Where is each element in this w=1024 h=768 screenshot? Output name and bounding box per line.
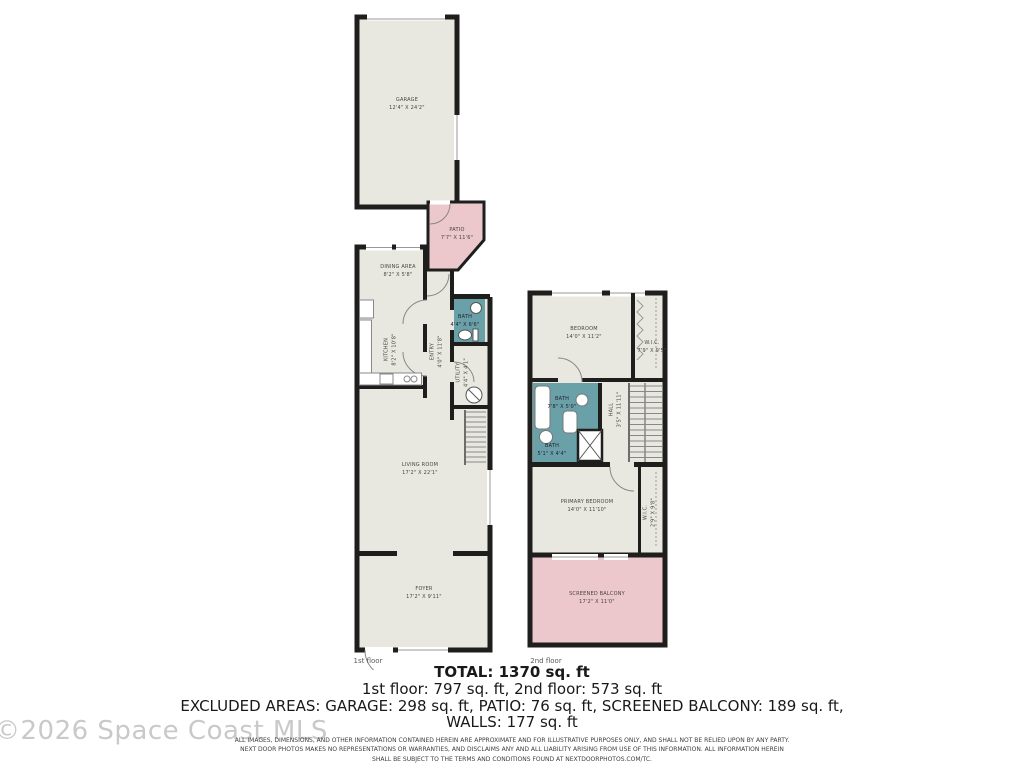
room-label-bath-1f: BATH 4'4" X 6'6" — [435, 314, 495, 329]
room-name: W.I.C. — [632, 340, 672, 348]
room-dims: 14'0" X 11'2" — [554, 334, 614, 342]
room-dims: 14'0" X 11'10" — [547, 507, 627, 515]
room-dims: 3'5" X 11'11" — [616, 380, 624, 440]
room-dims: 17'2" X 11'0" — [557, 599, 637, 607]
room-name: KITCHEN — [384, 320, 392, 380]
room-name: BATH — [522, 443, 582, 451]
room-dims: 7'9" X 9'5" — [632, 348, 672, 356]
room-dims: 8'2" X 5'8" — [368, 272, 428, 280]
room-name: W.I.C. — [643, 483, 651, 543]
room-dims: 8'2" X 10'8" — [391, 320, 399, 380]
excluded-areas: EXCLUDED AREAS: GARAGE: 298 sq. ft, PATI… — [0, 698, 1024, 715]
room-label-wic-bedroom: W.I.C. 7'9" X 9'5" — [632, 340, 672, 355]
room-label-wic-primary: W.I.C. 2'9" X 9'8" — [643, 483, 658, 543]
room-label-hall: HALL 3'5" X 11'11" — [609, 380, 624, 440]
room-name: UTILITY — [456, 343, 464, 403]
disclaimer-line: ALL IMAGES, DIMENSIONS, AND OTHER INFORM… — [0, 736, 1024, 745]
room-label-foyer: FOYER 17'2" X 9'11" — [394, 586, 454, 601]
room-name: BATH — [532, 396, 592, 404]
room-label-primary-bedroom: PRIMARY BEDROOM 14'0" X 11'10" — [547, 499, 627, 514]
room-name: LIVING ROOM — [390, 462, 450, 470]
room-label-screened-balcony: SCREENED BALCONY 17'2" X 11'0" — [557, 591, 637, 606]
room-name: PATIO — [427, 227, 487, 235]
room-label-garage: GARAGE 12'4" X 24'2" — [377, 97, 437, 112]
room-dims: 7'8" X 5'0" — [532, 404, 592, 412]
area-summary: TOTAL: 1370 sq. ft 1st floor: 797 sq. ft… — [0, 664, 1024, 731]
disclaimer-line: NEXT DOOR PHOTOS MAKES NO REPRESENTATION… — [0, 745, 1024, 754]
room-dims: 17'2" X 9'11" — [394, 594, 454, 602]
disclaimer-line: SHALL BE SUBJECT TO THE TERMS AND CONDIT… — [0, 755, 1024, 764]
room-name: BEDROOM — [554, 326, 614, 334]
room-dims: 2'9" X 9'8" — [650, 483, 658, 543]
room-dims: 4'0" X 11'8" — [437, 322, 445, 382]
room-dims: 12'4" X 24'2" — [377, 105, 437, 113]
room-name: FOYER — [394, 586, 454, 594]
room-label-bath-upper: BATH 7'8" X 5'0" — [532, 396, 592, 411]
total-area: TOTAL: 1370 sq. ft — [0, 664, 1024, 681]
room-label-utility: UTILITY 4'4" X 4'1" — [456, 343, 471, 403]
room-label-kitchen: KITCHEN 8'2" X 10'8" — [384, 320, 399, 380]
room-label-bath-lower: BATH 5'1" X 4'4" — [522, 443, 582, 458]
room-dims: 4'4" X 4'1" — [463, 343, 471, 403]
room-dims: 5'1" X 4'4" — [522, 451, 582, 459]
room-name: HALL — [609, 380, 617, 440]
room-label-entry: ENTRY 4'0" X 11'8" — [430, 322, 445, 382]
floor-areas: 1st floor: 797 sq. ft, 2nd floor: 573 sq… — [0, 681, 1024, 698]
room-dims: 17'2" X 22'1" — [390, 470, 450, 478]
room-name: DINING AREA — [368, 264, 428, 272]
room-name: SCREENED BALCONY — [557, 591, 637, 599]
room-dims: 4'4" X 6'6" — [435, 322, 495, 330]
walls-area: WALLS: 177 sq. ft — [0, 714, 1024, 731]
room-label-patio: PATIO 7'7" X 11'6" — [427, 227, 487, 242]
room-label-bedroom: BEDROOM 14'0" X 11'2" — [554, 326, 614, 341]
room-dims: 7'7" X 11'6" — [427, 235, 487, 243]
room-name: GARAGE — [377, 97, 437, 105]
room-name: PRIMARY BEDROOM — [547, 499, 627, 507]
room-name: BATH — [435, 314, 495, 322]
room-label-dining-area: DINING AREA 8'2" X 5'8" — [368, 264, 428, 279]
room-name: ENTRY — [430, 322, 438, 382]
disclaimer: ALL IMAGES, DIMENSIONS, AND OTHER INFORM… — [0, 736, 1024, 764]
floorplan-page: GARAGE 12'4" X 24'2" PATIO 7'7" X 11'6" … — [0, 0, 1024, 768]
room-label-living-room: LIVING ROOM 17'2" X 22'1" — [390, 462, 450, 477]
